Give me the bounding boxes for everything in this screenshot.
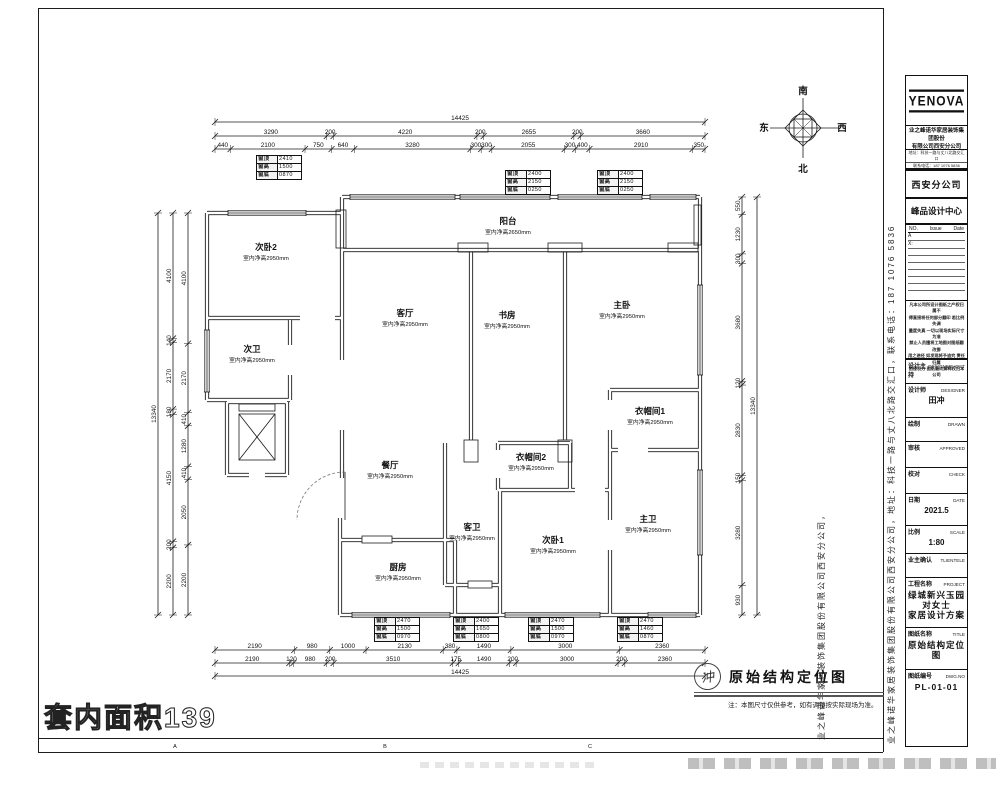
svg-text:室内净高2950mm: 室内净高2950mm (375, 574, 421, 582)
svg-text:主卫: 主卫 (639, 514, 657, 524)
window-head-table: 窗顶2470窗高1460窗底0870 (617, 617, 663, 642)
svg-text:衣帽间1: 衣帽间1 (635, 406, 666, 416)
window-head-table: 窗顶2400窗高2150窗底0250 (597, 170, 643, 195)
svg-text:150: 150 (735, 472, 742, 483)
svg-text:3660: 3660 (636, 129, 651, 136)
svg-text:120: 120 (286, 656, 297, 663)
print-artifact (688, 758, 996, 769)
compass-south: 南 (798, 85, 808, 97)
svg-text:300: 300 (565, 142, 576, 149)
window-head-table: 窗顶2400窗高2150窗底0250 (505, 170, 551, 195)
window-head-table: 窗顶2470窗高1500窗底0970 (374, 617, 420, 642)
svg-text:4220: 4220 (398, 129, 413, 136)
svg-text:14425: 14425 (451, 115, 469, 122)
svg-text:13340: 13340 (750, 397, 757, 415)
caption-note: 注：本图尺寸仅供参考，如有调整按实际现场为准。 (694, 699, 884, 709)
svg-text:980: 980 (307, 643, 318, 650)
design-center-name: 峰品设计中心 (906, 199, 967, 225)
svg-text:1490: 1490 (477, 643, 492, 650)
room-label: 衣帽间1室内净高2950mm (627, 406, 673, 426)
svg-text:180: 180 (166, 406, 173, 417)
svg-text:客卫: 客卫 (462, 522, 481, 532)
grid-letter: C (588, 744, 592, 750)
svg-text:3000: 3000 (558, 643, 573, 650)
svg-text:3680: 3680 (735, 315, 742, 330)
compass-east: 东 (759, 122, 769, 134)
svg-text:3510: 3510 (386, 656, 401, 663)
svg-text:1490: 1490 (477, 656, 492, 663)
window-head-table: 窗顶2410窗高1500窗底0870 (256, 155, 302, 180)
title-field-check: 校对CHECK (906, 467, 967, 493)
sheet-edge-company-text: 业之峰诺华家居装饰集团股份有限公司西安分公司，地址：科技一路与丈八北路交汇口，联… (886, 138, 897, 744)
room-label: 主卧室内净高2950mm (599, 300, 645, 320)
svg-text:阳台: 阳台 (499, 216, 517, 226)
svg-text:室内净高2950mm: 室内净高2950mm (243, 254, 289, 262)
svg-text:3290: 3290 (264, 129, 279, 136)
revision-row: A (908, 233, 965, 241)
elevator-icon (239, 404, 275, 460)
svg-text:300: 300 (735, 253, 742, 264)
svg-text:室内净高2950mm: 室内净高2950mm (508, 464, 554, 472)
svg-text:3280: 3280 (405, 142, 420, 149)
room-label: 阳台室内净高2650mm (485, 216, 531, 236)
svg-text:1230: 1230 (735, 227, 742, 242)
frame-grid-letters: ABC (173, 744, 592, 750)
room-label: 厨房室内净高2950mm (375, 562, 421, 582)
svg-text:室内净高2950mm: 室内净高2950mm (449, 534, 495, 542)
title-field-dwgno: 图纸编号DWG.NOPL-01-01 (906, 669, 967, 707)
window-head-table: 窗顶2470窗高1500窗底0970 (528, 617, 574, 642)
svg-text:衣帽间2: 衣帽间2 (516, 452, 547, 462)
svg-text:2360: 2360 (658, 656, 673, 663)
svg-text:2910: 2910 (634, 142, 649, 149)
svg-text:550: 550 (735, 200, 742, 211)
area-label: 套内面积139 (44, 696, 217, 736)
room-label: 客厅室内净高2950mm (382, 308, 428, 328)
svg-text:4100: 4100 (166, 268, 173, 283)
svg-text:14425: 14425 (451, 669, 469, 676)
svg-text:2170: 2170 (166, 368, 173, 383)
entry-door-arc (297, 472, 345, 520)
title-block: YENOVA 业之峰诺华家居装饰集团股份 有限公司西安分公司 地址：科技一路与丈… (905, 75, 968, 747)
svg-text:3000: 3000 (560, 656, 575, 663)
svg-text:2830: 2830 (735, 423, 742, 438)
svg-text:140: 140 (166, 335, 173, 346)
room-label: 书房室内净高2950mm (484, 310, 530, 330)
window-head-table: 窗顶2400窗高1650窗底0800 (453, 617, 499, 642)
svg-text:2360: 2360 (655, 643, 670, 650)
compass: 南 北 东 西 (759, 85, 847, 175)
title-field-tlientele: 业主确认TLIENTELE (906, 553, 967, 577)
svg-text:1000: 1000 (341, 643, 356, 650)
drawing-caption: 冲 原始结构定位图 注：本图尺寸仅供参考，如有调整按实际现场为准。 (694, 663, 884, 709)
caption-title: 原始结构定位图 (729, 667, 848, 687)
svg-text:室内净高2650mm: 室内净高2650mm (485, 228, 531, 236)
svg-text:175: 175 (450, 656, 461, 663)
room-label: 主卫室内净高2950mm (625, 514, 671, 534)
svg-text:3280: 3280 (735, 525, 742, 540)
svg-text:4100: 4100 (181, 271, 188, 286)
title-field-title: 图纸名称TITLE原始结构定位图 (906, 627, 967, 669)
svg-text:2170: 2170 (181, 371, 188, 386)
designer-stamp: 冲 (691, 660, 723, 692)
svg-text:410: 410 (181, 467, 188, 478)
svg-text:640: 640 (338, 142, 349, 149)
room-labels: 次卧2室内净高2950mm次卫室内净高2950mm客厅室内净高2950mm阳台室… (229, 216, 673, 582)
svg-text:980: 980 (305, 656, 316, 663)
grid-letter: B (383, 744, 387, 750)
svg-text:2200: 2200 (166, 574, 173, 589)
svg-text:室内净高2950mm: 室内净高2950mm (625, 526, 671, 534)
room-label: 衣帽间2室内净高2950mm (508, 452, 554, 472)
svg-text:次卫: 次卫 (243, 344, 261, 354)
svg-text:次卧1: 次卧1 (542, 535, 564, 545)
logo: YENOVA (906, 76, 967, 126)
svg-text:350: 350 (693, 142, 704, 149)
svg-text:2130: 2130 (397, 643, 412, 650)
svg-text:室内净高2950mm: 室内净高2950mm (367, 472, 413, 480)
svg-text:4150: 4150 (166, 471, 173, 486)
branch-name: 西安分公司 (906, 169, 967, 199)
svg-text:380: 380 (445, 643, 456, 650)
title-field-designer: 设计师DESIGNER田冲 (906, 383, 967, 417)
svg-text:室内净高2950mm: 室内净高2950mm (229, 356, 275, 364)
logo-text: YENOVA (909, 89, 965, 112)
svg-text:2100: 2100 (261, 142, 276, 149)
title-field-scale: 比例SCALE1:80 (906, 525, 967, 553)
svg-text:300: 300 (481, 142, 492, 149)
svg-text:440: 440 (217, 142, 228, 149)
title-block-fields: 设计主持DESIGNERHOST设计师DESIGNER田冲绘制DRAWN审核AP… (906, 359, 967, 746)
room-label: 客卫室内净高2950mm (449, 522, 495, 542)
svg-text:200: 200 (166, 539, 173, 550)
svg-text:200: 200 (325, 656, 336, 663)
svg-text:厨房: 厨房 (389, 562, 406, 572)
svg-text:930: 930 (735, 594, 742, 605)
svg-text:2050: 2050 (181, 505, 188, 520)
title-field-designerhost: 设计主持DESIGNERHOST (906, 359, 967, 383)
svg-text:750: 750 (313, 142, 324, 149)
svg-text:2055: 2055 (521, 142, 536, 149)
svg-text:200: 200 (616, 656, 627, 663)
svg-text:室内净高2950mm: 室内净高2950mm (627, 418, 673, 426)
svg-text:主卧: 主卧 (613, 300, 631, 310)
svg-text:1280: 1280 (181, 439, 188, 454)
title-field-drawn: 绘制DRAWN (906, 417, 967, 441)
title-field-approved: 审核APPROVED (906, 441, 967, 467)
compass-west: 西 (837, 123, 847, 134)
svg-text:餐厅: 餐厅 (380, 460, 399, 470)
svg-text:2190: 2190 (245, 656, 260, 663)
svg-text:室内净高2950mm: 室内净高2950mm (484, 322, 530, 330)
svg-text:2655: 2655 (522, 129, 537, 136)
svg-text:书房: 书房 (498, 310, 515, 320)
svg-text:300: 300 (471, 142, 482, 149)
print-artifact (420, 762, 600, 768)
svg-text:400: 400 (577, 142, 588, 149)
title-field-project: 工程名称PROJECT绿城新兴玉园对女士 家居设计方案 (906, 577, 967, 627)
svg-text:200: 200 (475, 129, 486, 136)
svg-text:200: 200 (572, 129, 583, 136)
room-label: 次卧2室内净高2950mm (243, 242, 289, 262)
company-name: 业之峰诺华家居装饰集团股份 有限公司西安分公司 (906, 126, 967, 150)
svg-text:13340: 13340 (151, 405, 158, 423)
company-contact: 地址：科技一路与丈八北路交汇口 联系电话：187 1076 5836 (906, 150, 967, 169)
revision-table: NO. Issue Date A X: (906, 225, 967, 301)
svg-text:200: 200 (507, 656, 518, 663)
svg-text:2200: 2200 (181, 572, 188, 587)
revision-row: X: (908, 241, 965, 249)
caption-rule (694, 692, 884, 697)
svg-text:客厅: 客厅 (395, 308, 414, 318)
room-label: 餐厅室内净高2950mm (367, 460, 413, 480)
room-label: 次卧1室内净高2950mm (530, 535, 576, 555)
svg-text:室内净高2950mm: 室内净高2950mm (599, 312, 645, 320)
room-label: 次卫室内净高2950mm (229, 344, 275, 364)
svg-text:室内净高2950mm: 室内净高2950mm (382, 320, 428, 328)
svg-text:200: 200 (325, 129, 336, 136)
grid-letter: A (173, 744, 177, 750)
svg-text:120: 120 (735, 377, 742, 388)
svg-text:2190: 2190 (248, 643, 263, 650)
title-field-date: 日期DATE2021.5 (906, 493, 967, 525)
compass-north: 北 (798, 163, 808, 175)
disclaimer: 凡本公司所设计图纸之产权归属不得直接将任何部分翻印 若比例失调量度失真 一切以现… (906, 301, 967, 359)
svg-text:410: 410 (181, 413, 188, 424)
svg-text:室内净高2950mm: 室内净高2950mm (530, 547, 576, 555)
svg-text:次卧2: 次卧2 (255, 242, 277, 252)
structural-columns (336, 205, 701, 252)
